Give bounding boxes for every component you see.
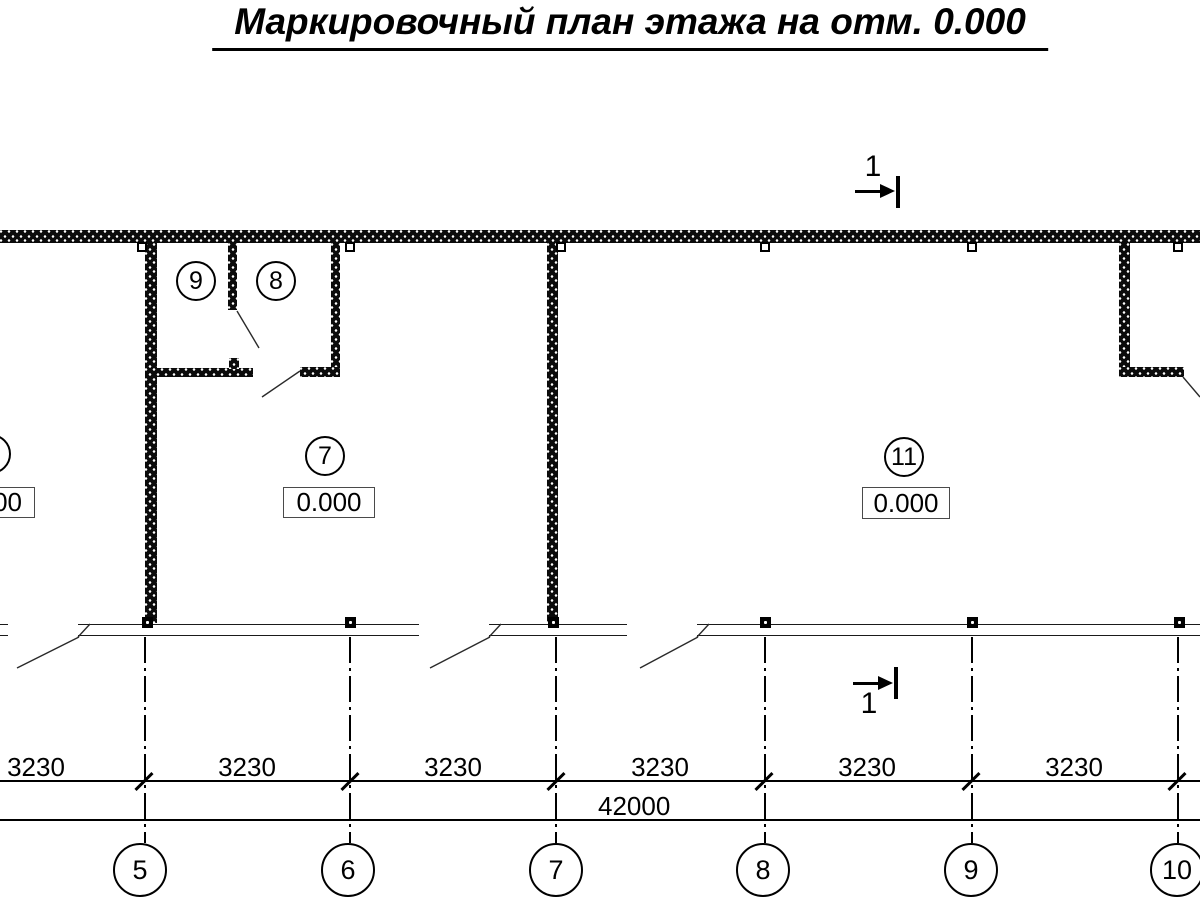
window-sill-3 [697, 624, 1200, 636]
section-mark-bottom-bar [894, 667, 898, 699]
axis-line-6 [349, 637, 351, 843]
wall-exterior-top [0, 230, 1200, 243]
room-bubble-9: 9 [176, 261, 216, 301]
wall-partition-room9-room8 [228, 243, 237, 310]
wall-room11-right-bottom [1119, 367, 1184, 377]
room-bubble-11: 11 [884, 437, 924, 477]
grid-bubble-5: 5 [113, 843, 167, 897]
room-number-9: 9 [189, 267, 203, 296]
column-tick-axis10 [1173, 242, 1183, 252]
column-tick-axis6 [345, 242, 355, 252]
elevation-value-room11: 0.000 [873, 488, 938, 519]
window-leader-right [640, 637, 698, 668]
column-tick-axis7 [556, 242, 566, 252]
axis-line-10 [1177, 637, 1179, 843]
wall-room9-bottom [145, 368, 253, 377]
axis-line-8 [764, 637, 766, 843]
dim-value-seg3: 3230 [424, 752, 482, 783]
axis-line-9 [971, 637, 973, 843]
dim-value-seg5: 3230 [838, 752, 896, 783]
room-number-7: 7 [318, 442, 332, 471]
column-tick-axis9 [967, 242, 977, 252]
grid-bubble-6: 6 [321, 843, 375, 897]
axis-line-7 [555, 637, 557, 843]
grid-axis-10: 10 [1162, 855, 1192, 886]
dim-value-seg6: 3230 [1045, 752, 1103, 783]
grid-bubble-9: 9 [944, 843, 998, 897]
column-marker-axis7 [548, 617, 559, 628]
elevation-box-left-partial: 0.000 [0, 487, 35, 518]
door-leader-room9 [237, 311, 259, 348]
elevation-box-room7: 0.000 [283, 487, 375, 518]
window-sill-left-edge [0, 624, 8, 636]
dimension-line-segments [0, 780, 1200, 782]
room-bubble-7: 7 [305, 436, 345, 476]
grid-axis-7: 7 [548, 855, 563, 886]
grid-bubble-10: 10 [1150, 843, 1200, 897]
room-bubble-8: 8 [256, 261, 296, 301]
window-leader-middle [430, 637, 490, 668]
column-marker-axis8 [760, 617, 771, 628]
wall-axis7-vertical [547, 243, 558, 623]
grid-axis-5: 5 [132, 855, 147, 886]
column-tick-axis5 [137, 242, 147, 252]
wall-room8-bottom [300, 367, 340, 377]
grid-bubble-8: 8 [736, 843, 790, 897]
door-leader-room11 [1183, 377, 1200, 397]
dim-value-seg1: 3230 [7, 752, 65, 783]
column-marker-axis6 [345, 617, 356, 628]
dim-value-seg4: 3230 [631, 752, 689, 783]
dim-value-seg2: 3230 [218, 752, 276, 783]
door-leader-room7 [262, 371, 300, 397]
wall-room8-right [331, 243, 340, 377]
column-marker-axis10 [1174, 617, 1185, 628]
room-bubble-left-partial [0, 434, 11, 474]
grid-axis-9: 9 [963, 855, 978, 886]
column-marker-axis9 [967, 617, 978, 628]
section-mark-bottom-label: 1 [856, 687, 882, 721]
window-leader-left [17, 637, 79, 668]
room-number-11: 11 [891, 443, 917, 472]
column-marker-axis5 [142, 617, 153, 628]
section-mark-top-arrowhead-icon [880, 184, 895, 198]
grid-bubble-7: 7 [529, 843, 583, 897]
column-tick-axis8 [760, 242, 770, 252]
elevation-box-room11: 0.000 [862, 487, 950, 519]
grid-axis-6: 6 [340, 855, 355, 886]
leader-lines-layer [0, 0, 1200, 900]
elevation-value-left-partial: 0.000 [0, 487, 22, 518]
section-mark-top-bar [896, 176, 900, 208]
room-number-8: 8 [269, 267, 283, 296]
axis-line-5 [144, 637, 146, 843]
drawing-title: Маркировочный план этажа на отм. 0.000 [212, 1, 1048, 51]
grid-axis-8: 8 [755, 855, 770, 886]
wall-axis5-vertical [145, 243, 157, 623]
section-mark-top-label: 1 [860, 150, 886, 184]
drawing-sheet: Маркировочный план этажа на отм. 0.000 1… [0, 0, 1200, 900]
window-sill-1 [78, 624, 419, 636]
wall-room9-door-jamb [229, 358, 239, 369]
wall-axis10-vertical [1119, 243, 1130, 377]
elevation-value-room7: 0.000 [296, 487, 361, 518]
dim-value-total: 42000 [598, 791, 670, 822]
